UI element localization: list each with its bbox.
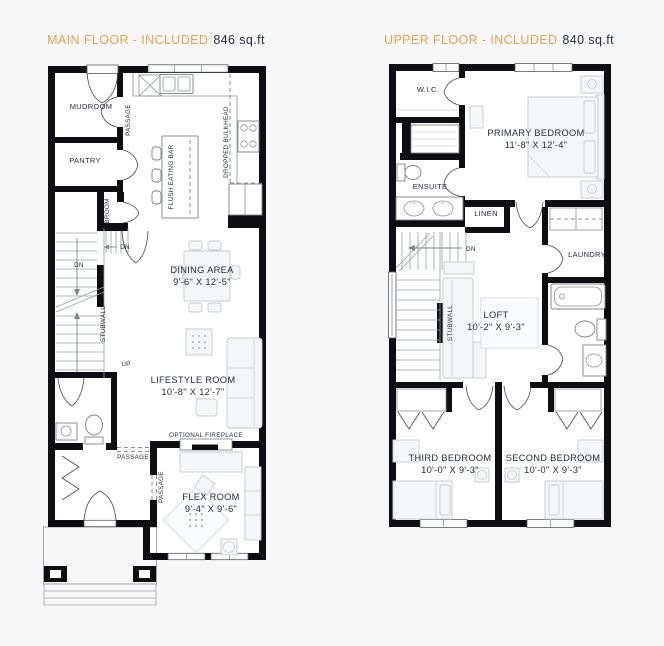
main-floor-area: 846 sq.ft bbox=[213, 33, 265, 47]
floorplan-page: MAIN FLOOR - INCLUDED 846 sq.ft UPPER FL… bbox=[0, 0, 664, 646]
shower bbox=[411, 125, 459, 153]
label-mudroom: MUDROOM bbox=[70, 102, 113, 111]
fridge bbox=[229, 184, 262, 215]
label-flex-dims: 9'-4" X 9'-6" bbox=[185, 504, 237, 514]
ensuite-toilet bbox=[397, 164, 421, 181]
label-flush-eating-bar: FLUSH EATING BAR bbox=[168, 144, 175, 209]
label-pantry: PANTRY bbox=[69, 156, 101, 165]
label-dining-dims: 9'-6" X 12'-5" bbox=[173, 277, 231, 287]
main-floor-plan: MUDROOM PASSAGE PANTRY BROOM DN DN STUBW… bbox=[40, 58, 272, 614]
label-dining-area: DINING AREA bbox=[170, 265, 234, 275]
optional-fireplace bbox=[180, 439, 232, 450]
label-stubwall-main: STUBWALL bbox=[100, 306, 107, 342]
main-floor-title-text: MAIN FLOOR - INCLUDED bbox=[47, 33, 208, 47]
label-optional-fireplace: OPTIONAL FIREPLACE bbox=[169, 432, 243, 439]
label-broom: BROOM bbox=[104, 198, 111, 223]
label-passage-mid: PASSAGE bbox=[117, 454, 149, 461]
label-dropped-bulkhead: DROPPED BULKHEAD bbox=[223, 106, 230, 178]
label-passage-top: PASSAGE bbox=[125, 104, 132, 136]
label-loft-dims: 10'-2" X 9'-3" bbox=[467, 322, 525, 332]
upper-floor-plan: W.I.C. ENSUITE PRIMARY BEDROOM 11'-8" X … bbox=[378, 56, 620, 538]
label-stubwall-upper: STUBWALL bbox=[447, 305, 454, 341]
label-lifestyle-room: LIFESTYLE ROOM bbox=[151, 375, 236, 385]
label-wic: W.I.C. bbox=[417, 85, 439, 94]
label-third-bedroom: THIRD BEDROOM bbox=[409, 453, 492, 463]
main-floor-title: MAIN FLOOR - INCLUDED 846 sq.ft bbox=[40, 33, 272, 47]
label-second-dims: 10'-0" X 9'-3" bbox=[524, 465, 582, 475]
label-passage-flex: PASSAGE bbox=[158, 471, 165, 503]
label-lifestyle-dims: 10'-8" X 12'-7" bbox=[161, 387, 224, 397]
label-up: UP bbox=[121, 361, 130, 368]
label-third-dims: 10'-0" X 9'-3" bbox=[421, 465, 479, 475]
label-linen: LINEN bbox=[474, 209, 498, 218]
range-stove bbox=[238, 121, 259, 152]
label-second-bedroom: SECOND BEDROOM bbox=[506, 453, 601, 463]
label-dn-upper: DN bbox=[120, 244, 130, 251]
label-dn-upper-floor: DN bbox=[466, 246, 476, 253]
label-primary-bedroom: PRIMARY BEDROOM bbox=[487, 128, 584, 138]
label-dn-lower: DN bbox=[74, 262, 84, 269]
kitchen-sink bbox=[160, 75, 193, 94]
upper-floor-title-text: UPPER FLOOR - INCLUDED bbox=[384, 33, 557, 47]
ensuite-vanity bbox=[396, 197, 463, 220]
front-porch bbox=[44, 527, 157, 605]
upper-floor-area: 840 sq.ft bbox=[562, 33, 614, 47]
label-ensuite: ENSUITE bbox=[413, 182, 448, 191]
label-flex-room: FLEX ROOM bbox=[182, 492, 239, 502]
label-laundry: LAUNDRY bbox=[568, 250, 606, 259]
label-primary-dims: 11'-8" X 12'-4" bbox=[505, 140, 568, 150]
label-loft: LOFT bbox=[484, 310, 509, 320]
upper-floor-title: UPPER FLOOR - INCLUDED 840 sq.ft bbox=[378, 33, 620, 47]
